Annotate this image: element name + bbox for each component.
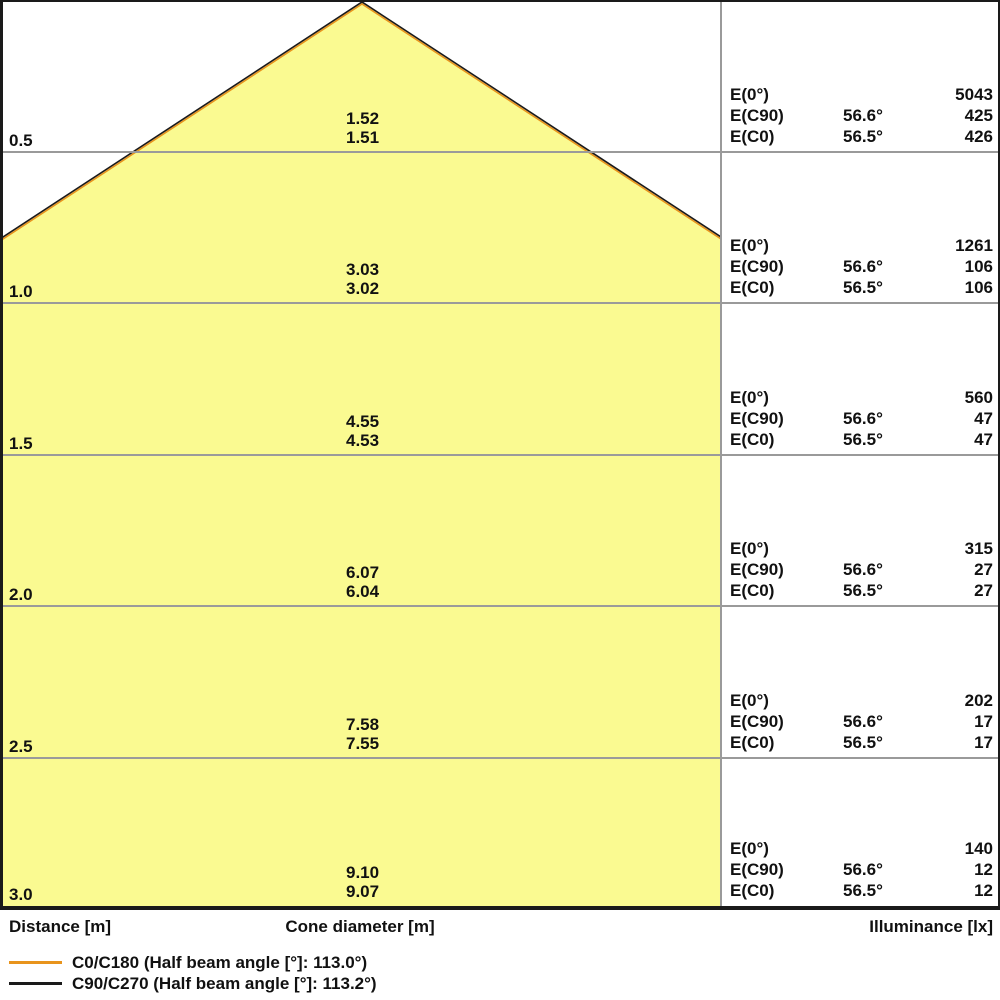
e0-label: E(0°)	[730, 84, 843, 105]
distance-label: 3.0	[9, 884, 33, 906]
illuminance-row-e0: E(0°) 202	[730, 690, 993, 711]
illuminance-axis-label: Illuminance [lx]	[743, 916, 993, 938]
grid-line	[3, 302, 998, 304]
e0-value: 202	[923, 690, 993, 711]
e0-label: E(0°)	[730, 235, 843, 256]
cone-diameter-values: 6.07 6.04	[346, 563, 379, 601]
grid-line	[3, 757, 998, 759]
illuminance-row-e0: E(0°) 560	[730, 387, 993, 408]
ec90-label: E(C90)	[730, 859, 843, 880]
ec0-label: E(C0)	[730, 277, 843, 298]
ec0-value: 106	[923, 277, 993, 298]
cone-diameter-c0: 4.53	[346, 431, 379, 450]
e0-angle	[843, 838, 923, 859]
illuminance-row-ec0: E(C0) 56.5° 17	[730, 732, 993, 753]
cone-diameter-values: 4.55 4.53	[346, 412, 379, 450]
illuminance-block: E(0°) 5043 E(C90) 56.6° 425 E(C0) 56.5° …	[730, 84, 993, 147]
illuminance-row-ec0: E(C0) 56.5° 426	[730, 126, 993, 147]
illuminance-row-e0: E(0°) 315	[730, 538, 993, 559]
cone-diameter-values: 9.10 9.07	[346, 863, 379, 901]
e0-angle	[843, 690, 923, 711]
ec90-label: E(C90)	[730, 711, 843, 732]
panel-divider	[720, 2, 722, 906]
illuminance-row-ec0: E(C0) 56.5° 47	[730, 429, 993, 450]
ec90-label: E(C90)	[730, 105, 843, 126]
ec0-angle: 56.5°	[843, 880, 923, 901]
e0-value: 140	[923, 838, 993, 859]
cone-diameter-values: 3.03 3.02	[346, 260, 379, 298]
c0-line-swatch-icon	[9, 961, 62, 964]
ec0-angle: 56.5°	[843, 580, 923, 601]
e0-label: E(0°)	[730, 690, 843, 711]
e0-angle	[843, 538, 923, 559]
ec90-label: E(C90)	[730, 256, 843, 277]
ec0-label: E(C0)	[730, 732, 843, 753]
illuminance-row-ec90: E(C90) 56.6° 47	[730, 408, 993, 429]
illuminance-block: E(0°) 202 E(C90) 56.6° 17 E(C0) 56.5° 17	[730, 690, 993, 753]
ec90-angle: 56.6°	[843, 559, 923, 580]
e0-value: 560	[923, 387, 993, 408]
legend-entry-c90: C90/C270 (Half beam angle [°]: 113.2°)	[0, 973, 1000, 994]
illuminance-block: E(0°) 1261 E(C90) 56.6° 106 E(C0) 56.5° …	[730, 235, 993, 298]
e0-value: 1261	[923, 235, 993, 256]
cone-diameter-c90: 3.03	[346, 260, 379, 279]
illuminance-block: E(0°) 315 E(C90) 56.6° 27 E(C0) 56.5° 27	[730, 538, 993, 601]
grid-line	[3, 454, 998, 456]
ec90-angle: 56.6°	[843, 408, 923, 429]
chart-border-top	[0, 0, 1000, 2]
e0-label: E(0°)	[730, 538, 843, 559]
distance-label: 2.0	[9, 584, 33, 606]
ec90-angle: 56.6°	[843, 859, 923, 880]
illuminance-block: E(0°) 560 E(C90) 56.6° 47 E(C0) 56.5° 47	[730, 387, 993, 450]
cone-diameter-c0: 7.55	[346, 734, 379, 753]
cone-diameter-values: 7.58 7.55	[346, 715, 379, 753]
illuminance-row-ec90: E(C90) 56.6° 17	[730, 711, 993, 732]
ec0-angle: 56.5°	[843, 277, 923, 298]
ec90-angle: 56.6°	[843, 256, 923, 277]
cone-diameter-c90: 7.58	[346, 715, 379, 734]
distance-label: 1.0	[9, 281, 33, 303]
ec0-value: 47	[923, 429, 993, 450]
ec0-label: E(C0)	[730, 580, 843, 601]
cone-diameter-values: 1.52 1.51	[346, 109, 379, 147]
e0-angle	[843, 84, 923, 105]
e0-label: E(0°)	[730, 387, 843, 408]
e0-angle	[843, 387, 923, 408]
illuminance-row-ec90: E(C90) 56.6° 106	[730, 256, 993, 277]
ec90-value: 47	[923, 408, 993, 429]
illuminance-row-e0: E(0°) 140	[730, 838, 993, 859]
distance-label: 0.5	[9, 130, 33, 152]
cone-diameter-c0: 3.02	[346, 279, 379, 298]
e0-label: E(0°)	[730, 838, 843, 859]
ec90-value: 12	[923, 859, 993, 880]
illuminance-row-ec90: E(C90) 56.6° 27	[730, 559, 993, 580]
illuminance-row-ec0: E(C0) 56.5° 106	[730, 277, 993, 298]
legend-label-c0: C0/C180 (Half beam angle [°]: 113.0°)	[72, 952, 367, 973]
ec0-angle: 56.5°	[843, 429, 923, 450]
chart-border-left	[0, 0, 3, 910]
cone-diameter-c90: 1.52	[346, 109, 379, 128]
illuminance-row-e0: E(0°) 5043	[730, 84, 993, 105]
cone-diameter-c90: 6.07	[346, 563, 379, 582]
ec90-value: 425	[923, 105, 993, 126]
distance-axis-label: Distance [m]	[9, 916, 111, 938]
ec0-label: E(C0)	[730, 880, 843, 901]
ec0-angle: 56.5°	[843, 732, 923, 753]
legend-entry-c0: C0/C180 (Half beam angle [°]: 113.0°)	[0, 952, 1000, 973]
cone-diagram: 0.5 1.52 1.51 E(0°) 5043 E(C90) 56.6° 42…	[0, 0, 1000, 1000]
ec0-label: E(C0)	[730, 429, 843, 450]
cone-diameter-c0: 6.04	[346, 582, 379, 601]
e0-value: 315	[923, 538, 993, 559]
cone-diameter-c0: 1.51	[346, 128, 379, 147]
ec90-label: E(C90)	[730, 559, 843, 580]
ec90-value: 106	[923, 256, 993, 277]
cone-diameter-c90: 9.10	[346, 863, 379, 882]
e0-angle	[843, 235, 923, 256]
grid-line	[3, 605, 998, 607]
e0-value: 5043	[923, 84, 993, 105]
illuminance-block: E(0°) 140 E(C90) 56.6° 12 E(C0) 56.5° 12	[730, 838, 993, 901]
ec0-value: 12	[923, 880, 993, 901]
ec0-angle: 56.5°	[843, 126, 923, 147]
chart-border-bottom	[0, 906, 1000, 910]
ec0-value: 17	[923, 732, 993, 753]
illuminance-row-e0: E(0°) 1261	[730, 235, 993, 256]
illuminance-row-ec0: E(C0) 56.5° 27	[730, 580, 993, 601]
cone-diameter-c90: 4.55	[346, 412, 379, 431]
legend-label-c90: C90/C270 (Half beam angle [°]: 113.2°)	[72, 973, 377, 994]
distance-label: 2.5	[9, 736, 33, 758]
illuminance-row-ec0: E(C0) 56.5° 12	[730, 880, 993, 901]
ec0-label: E(C0)	[730, 126, 843, 147]
ec90-label: E(C90)	[730, 408, 843, 429]
cone-diameter-c0: 9.07	[346, 882, 379, 901]
distance-label: 1.5	[9, 433, 33, 455]
ec90-angle: 56.6°	[843, 105, 923, 126]
cone-diameter-axis-label: Cone diameter [m]	[235, 916, 485, 938]
c90-line-swatch-icon	[9, 982, 62, 985]
ec90-angle: 56.6°	[843, 711, 923, 732]
grid-line	[3, 151, 998, 153]
illuminance-row-ec90: E(C90) 56.6° 12	[730, 859, 993, 880]
ec0-value: 426	[923, 126, 993, 147]
ec90-value: 27	[923, 559, 993, 580]
illuminance-row-ec90: E(C90) 56.6° 425	[730, 105, 993, 126]
ec0-value: 27	[923, 580, 993, 601]
ec90-value: 17	[923, 711, 993, 732]
